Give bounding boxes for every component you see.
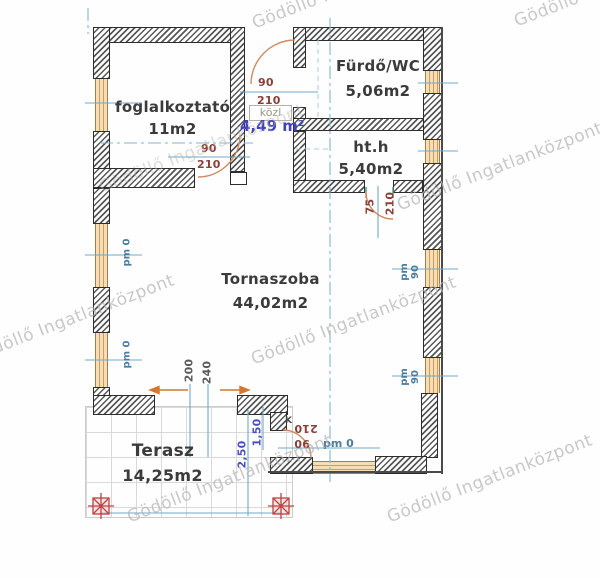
room-area-tornaszoba: 44,02m2 [208,294,333,312]
room-label-foglalkoztato: foglalkoztató [115,98,230,116]
room-area-hth: 5,40m2 [330,160,412,178]
wall-right-segment-4 [423,287,442,358]
outer-face-line-right [441,27,443,474]
wall-torna-left-1 [93,188,110,224]
watermark-bottom-right: Gödöllő Ingatlanközpont [384,430,595,527]
dim-door-hth-width: 75 [364,192,377,222]
parapet-label-right-upper: pm 90 [399,257,421,287]
wall-furdo-top [293,27,442,41]
wall-foglalkoztato-bottom [93,168,195,188]
window-hth-right [425,140,440,163]
dim-door-fogl-height: 210 [197,158,221,171]
wall-hth-bottom-right [393,180,423,193]
parapet-label-left-upper: pm 0 [122,238,133,268]
door-jamb-foglalkoztato [230,172,247,185]
room-label-tornaszoba: Tornaszoba [208,270,333,288]
outer-face-line-bottom [268,471,443,473]
room-label-hth: ht.h [330,138,412,156]
window-torna-right-upper [425,250,440,287]
window-foglalkoztato-left [95,79,108,131]
dim-terrace-250: 2,50 [236,440,249,470]
opening-width-arrows [150,387,249,394]
room-label-furdo-wc: Fürdő/WC [322,57,434,75]
wall-right-segment-5 [421,393,438,458]
wall-terrace-block-left [93,395,155,415]
wall-foglalkoztato-left-upper [93,27,110,79]
room-area-kozl: 4,49 m² [240,117,304,135]
wall-right-segment-2 [423,93,442,140]
wall-foglalkoztato-right [230,27,245,172]
dim-door-terasz-height: 210 [293,422,319,435]
room-area-foglalkoztato: 11m2 [115,120,230,138]
parapet-label-terrace-door: pm 0 [323,437,354,450]
room-area-furdo-wc: 5,06m2 [322,82,434,100]
dim-opening-240: 240 [201,358,214,388]
watermark-left: Gödöllő Ingatlanközpont [0,270,177,367]
window-torna-right-lower [425,358,440,393]
wall-torna-left-2 [93,287,110,333]
dim-door-kozl-width: 90 [258,76,274,89]
floor-plan: foglalkoztató 11m2 Fürdő/WC 5,06m2 ht.h … [0,0,600,578]
door-marker-k: K [285,416,292,426]
watermark-top-right: Gödöllő Ingatlanközpont [511,0,600,31]
wall-furdo-hth-divider [293,118,425,131]
dim-door-hth-height: 210 [384,189,397,219]
window-torna-left-upper [95,224,108,287]
dim-opening-200: 200 [183,356,196,386]
room-label-terasz: Terasz [118,441,208,461]
dim-door-terasz-width: 90 [289,437,315,450]
parapet-label-left-lower: pm 0 [122,340,133,370]
wall-right-segment-3 [423,163,442,250]
wall-foglalkoztato-top [93,27,245,43]
wall-hth-bottom-left [293,180,365,193]
parapet-label-right-lower: pm 90 [399,362,421,392]
dim-door-fogl-width: 90 [201,142,217,155]
window-torna-left-lower [95,333,108,387]
dim-door-kozl-height: 210 [257,94,281,107]
wall-furdo-left-upper [293,27,306,68]
dim-terrace-150: 1,50 [251,418,264,448]
room-area-terasz: 14,25m2 [105,466,220,485]
